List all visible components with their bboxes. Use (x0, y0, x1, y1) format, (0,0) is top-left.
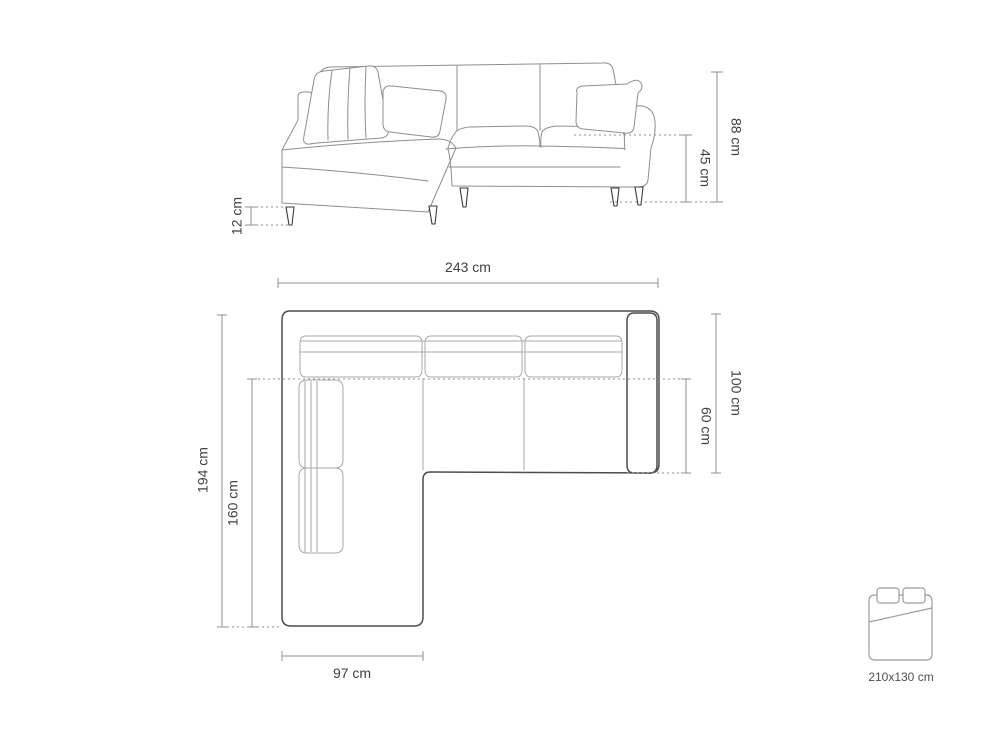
sofa-legs (286, 187, 643, 225)
chaise-body (282, 139, 456, 212)
bed-mattress (869, 595, 932, 660)
plan-chaise-cushions (299, 380, 343, 553)
backrest-seams (457, 65, 540, 130)
bed-fold-line (869, 608, 932, 622)
pillow-right (576, 80, 642, 133)
dim-chaise-width-97-line (282, 651, 423, 661)
dim-seat-depth-60: 60 cm (681, 379, 714, 473)
dim-chaise-length-160-line (247, 379, 257, 627)
sleeping-area-label: 210x130 cm (868, 670, 933, 684)
dim-seat-height-45: 45 cm (680, 135, 713, 202)
plan-view: 243 cm 194 cm 160 cm 100 cm 60 cm 97 cm (195, 259, 745, 681)
dim-chaise-length-160: 160 cm (225, 379, 257, 627)
plan-extension-lines (222, 379, 687, 627)
diagram-svg: 88 cm 45 cm 12 cm 243 cm (0, 0, 1000, 750)
dim-seat-height-45-line (680, 135, 692, 202)
dim-chaise-length-160-label: 160 cm (225, 480, 241, 526)
dim-depth-194: 194 cm (195, 315, 227, 627)
plan-back-cushions (300, 336, 622, 377)
dim-chaise-width-97-label: 97 cm (333, 665, 371, 681)
sleeping-area-icon: 210x130 cm (868, 588, 933, 684)
dim-seat-depth-60-label: 60 cm (698, 407, 714, 445)
plan-armrest (627, 313, 657, 473)
bed-pillow-right (903, 588, 925, 603)
dim-height-88: 88 cm (711, 72, 744, 202)
dim-body-depth-100-label: 100 cm (728, 370, 744, 416)
dim-width-243-label: 243 cm (445, 259, 491, 275)
pillow-left (383, 86, 446, 137)
striped-cushion (304, 66, 389, 144)
dim-body-depth-100: 100 cm (711, 314, 744, 473)
sofa-dimensions-diagram: 88 cm 45 cm 12 cm 243 cm (0, 0, 1000, 750)
seat-base (448, 149, 632, 187)
front-view: 88 cm 45 cm 12 cm (229, 63, 745, 235)
dim-chaise-width-97: 97 cm (282, 651, 423, 681)
plan-seat-seams (423, 378, 524, 470)
dim-seat-height-45-label: 45 cm (697, 149, 713, 187)
dim-leg-height-12-label: 12 cm (229, 197, 245, 235)
dim-depth-194-line (217, 315, 227, 627)
dim-seat-depth-60-line (681, 379, 691, 473)
dim-body-depth-100-line (711, 314, 721, 473)
dim-leg-height-12-line (245, 207, 257, 225)
dim-width-243: 243 cm (278, 259, 658, 288)
dim-width-243-line (278, 278, 658, 288)
bed-pillow-left (877, 588, 899, 603)
dim-leg-height-12: 12 cm (229, 197, 257, 235)
dim-depth-194-label: 194 cm (195, 447, 211, 493)
dim-height-88-label: 88 cm (728, 118, 744, 156)
